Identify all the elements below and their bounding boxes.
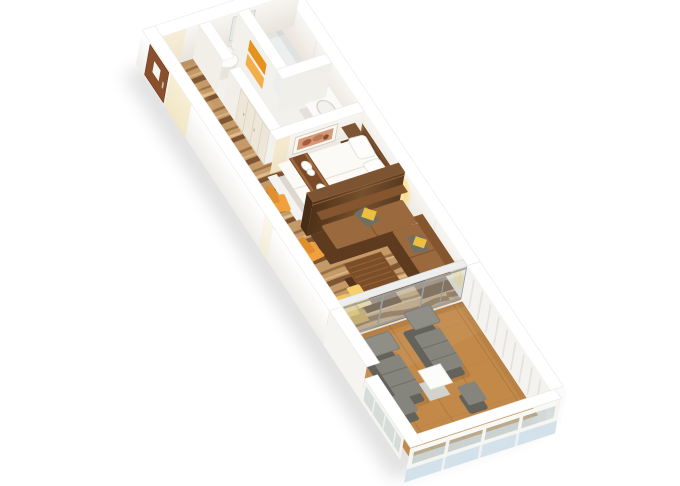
floorplan-render: 3D isometric floor plan of a cruise ship… <box>0 0 680 486</box>
